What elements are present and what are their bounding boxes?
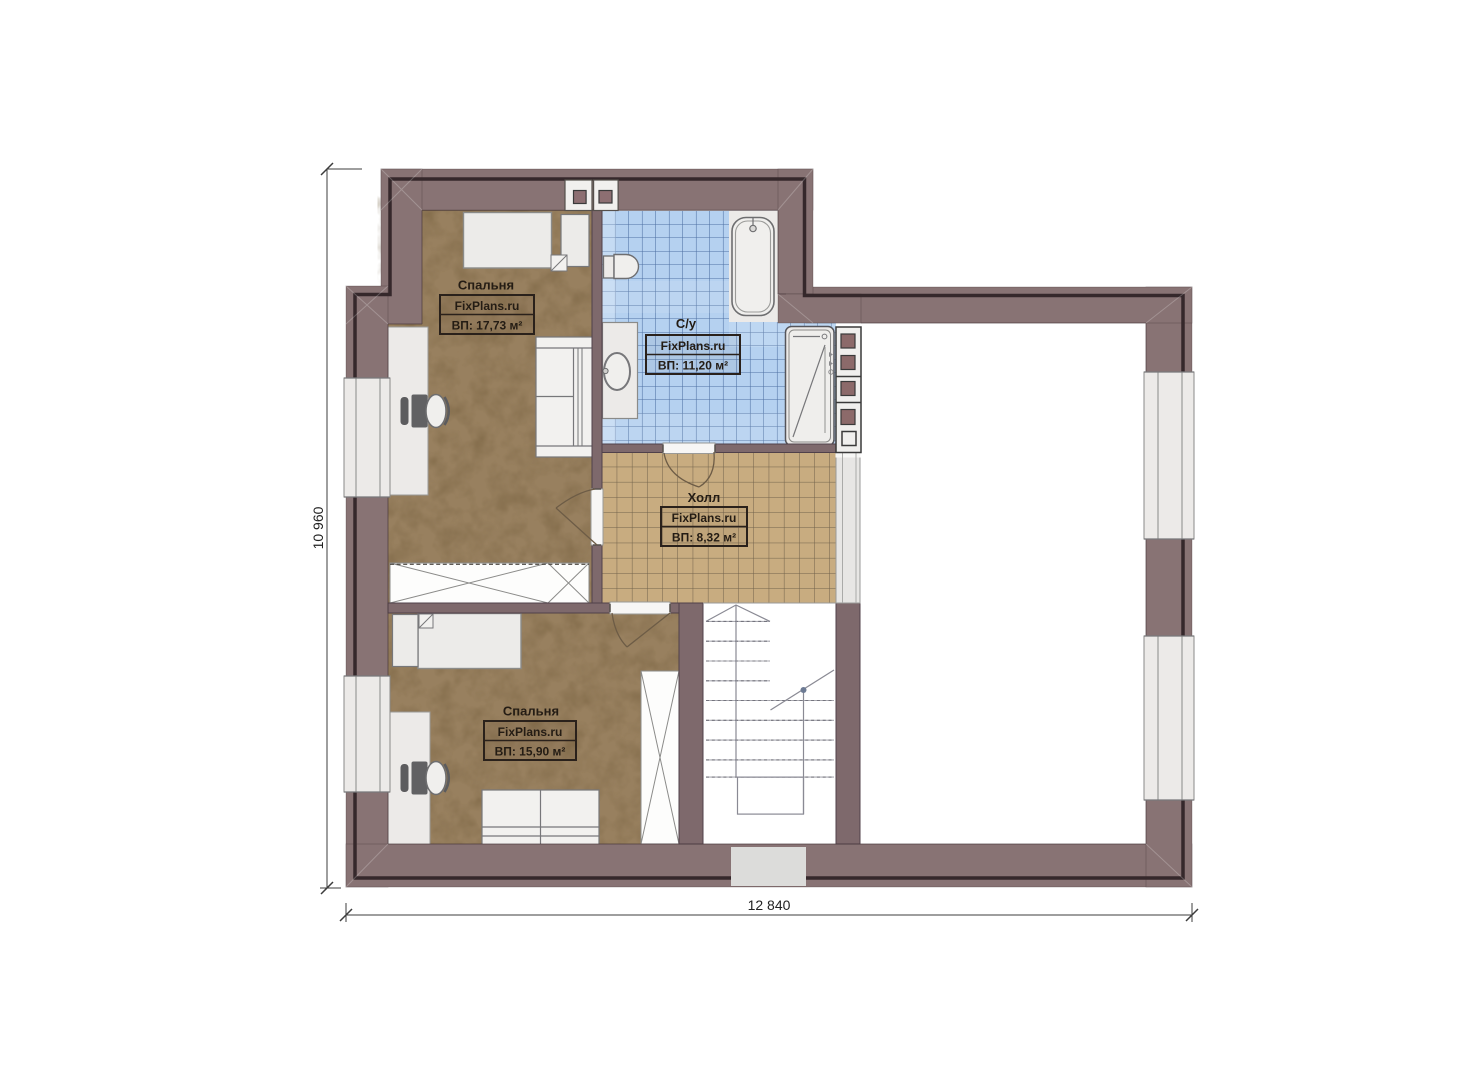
svg-text:ВП: 17,73 м²: ВП: 17,73 м²: [452, 319, 523, 333]
svg-text:С/у: С/у: [676, 316, 697, 331]
svg-text:Спальня: Спальня: [503, 704, 559, 719]
svg-text:ВП: 8,32 м²: ВП: 8,32 м²: [672, 531, 736, 545]
svg-text:Спальня: Спальня: [458, 278, 514, 293]
svg-text:FixPlans.ru: FixPlans.ru: [661, 339, 726, 353]
svg-text:ВП: 15,90 м²: ВП: 15,90 м²: [495, 745, 566, 759]
svg-text:FixPlans.ru: FixPlans.ru: [455, 299, 520, 313]
svg-text:10 960: 10 960: [310, 506, 326, 549]
svg-text:ВП: 11,20 м²: ВП: 11,20 м²: [658, 359, 728, 373]
svg-text:12 840: 12 840: [748, 897, 791, 913]
svg-text:FixPlans.ru: FixPlans.ru: [672, 511, 737, 525]
svg-text:Холл: Холл: [688, 490, 721, 505]
svg-text:FixPlans.ru: FixPlans.ru: [498, 725, 563, 739]
